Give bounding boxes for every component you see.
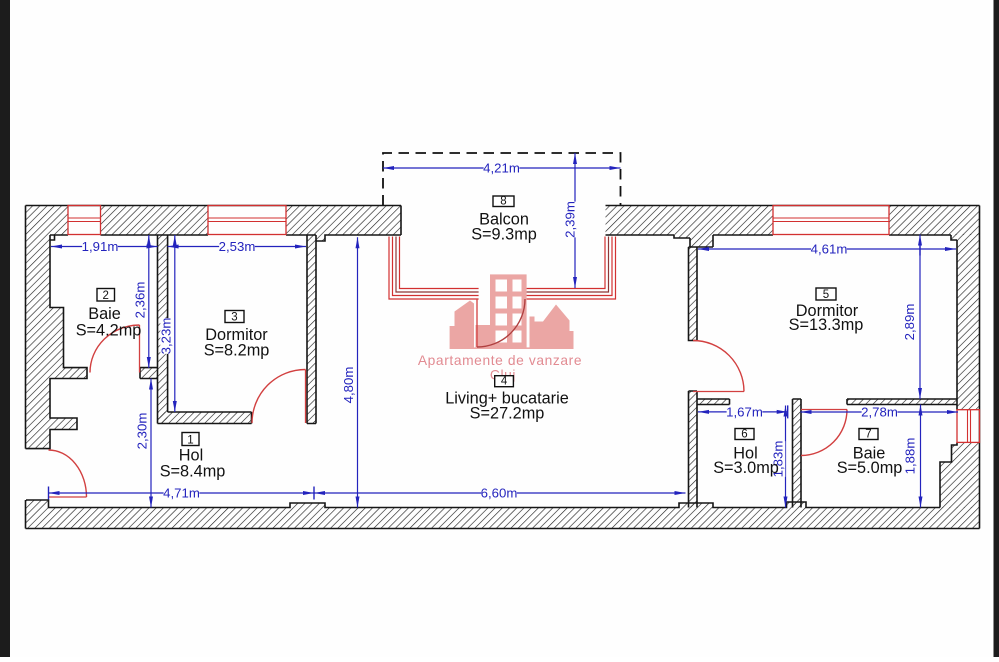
- svg-text:2,36m: 2,36m: [133, 282, 148, 319]
- svg-text:6,60m: 6,60m: [481, 486, 518, 501]
- svg-text:2,89m: 2,89m: [902, 304, 917, 341]
- svg-text:S=4.2mp: S=4.2mp: [76, 322, 142, 340]
- svg-text:4: 4: [501, 376, 508, 388]
- svg-text:1,67m: 1,67m: [726, 405, 763, 420]
- svg-text:4,80m: 4,80m: [341, 367, 356, 404]
- svg-text:1,91m: 1,91m: [82, 239, 119, 254]
- svg-text:2,30m: 2,30m: [135, 413, 150, 450]
- svg-text:S=8.2mp: S=8.2mp: [204, 342, 270, 360]
- svg-text:S=9.3mp: S=9.3mp: [471, 226, 537, 244]
- svg-text:Apartamente de vanzare: Apartamente de vanzare: [418, 353, 582, 368]
- svg-text:6: 6: [741, 428, 747, 440]
- svg-text:4,21m: 4,21m: [483, 161, 520, 176]
- svg-text:2: 2: [103, 290, 109, 302]
- svg-text:3,23m: 3,23m: [159, 318, 174, 355]
- svg-text:S=3.0mp: S=3.0mp: [713, 459, 779, 477]
- svg-text:2,78m: 2,78m: [861, 405, 898, 420]
- svg-text:5: 5: [823, 289, 829, 301]
- svg-text:4,71m: 4,71m: [163, 486, 200, 501]
- svg-text:Baie: Baie: [88, 305, 121, 323]
- svg-text:7: 7: [865, 428, 871, 440]
- svg-text:4,61m: 4,61m: [811, 242, 848, 257]
- svg-text:S=8.4mp: S=8.4mp: [160, 463, 226, 481]
- svg-text:2,53m: 2,53m: [219, 239, 256, 254]
- svg-text:2,39m: 2,39m: [563, 201, 578, 238]
- svg-text:8: 8: [500, 195, 506, 207]
- svg-text:S=27.2mp: S=27.2mp: [470, 405, 545, 423]
- svg-text:1,88m: 1,88m: [903, 438, 918, 475]
- svg-text:1: 1: [187, 434, 193, 446]
- svg-text:S=13.3mp: S=13.3mp: [789, 316, 864, 334]
- svg-text:S=5.0mp: S=5.0mp: [837, 459, 903, 477]
- svg-text:3: 3: [231, 311, 237, 323]
